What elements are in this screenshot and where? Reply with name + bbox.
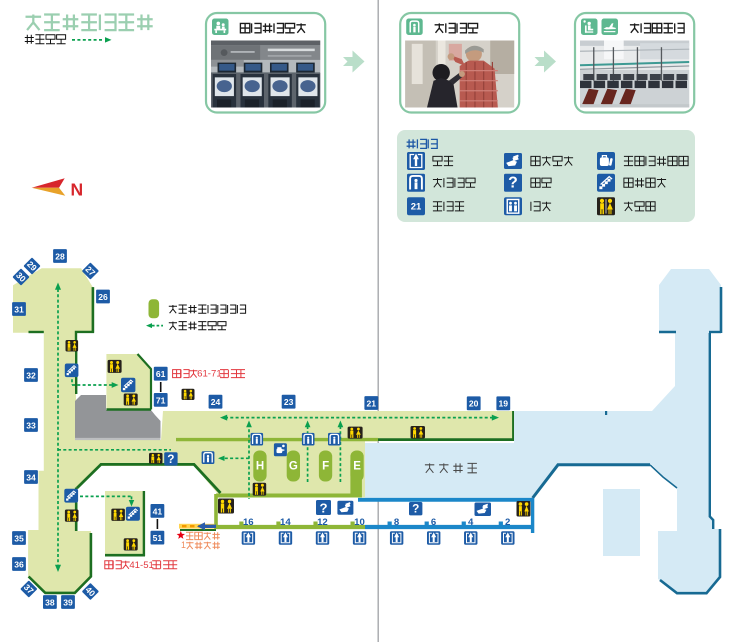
- svg-text:36: 36: [14, 559, 24, 569]
- svg-text:39: 39: [63, 597, 73, 607]
- svg-text:4: 4: [468, 517, 474, 528]
- svg-text:51: 51: [153, 533, 163, 543]
- svg-text:32: 32: [26, 370, 36, 380]
- svg-text:?: ?: [319, 501, 327, 516]
- svg-text:28: 28: [55, 251, 65, 261]
- svg-text:21: 21: [411, 201, 422, 212]
- svg-text:N: N: [71, 180, 84, 200]
- svg-text:?: ?: [508, 175, 518, 192]
- svg-text:10: 10: [354, 517, 365, 528]
- svg-text:23: 23: [284, 397, 294, 407]
- svg-text:20: 20: [469, 399, 479, 409]
- svg-text:8: 8: [394, 517, 400, 528]
- svg-text:12: 12: [317, 517, 328, 528]
- svg-text:71: 71: [156, 395, 166, 405]
- svg-text:35: 35: [14, 533, 24, 543]
- svg-text:E: E: [353, 461, 361, 473]
- svg-text:21: 21: [367, 398, 377, 408]
- svg-text:6: 6: [431, 517, 436, 528]
- svg-text:33: 33: [26, 420, 36, 430]
- svg-text:19: 19: [499, 399, 509, 409]
- svg-text:14: 14: [280, 517, 291, 528]
- svg-text:2: 2: [505, 517, 510, 528]
- svg-text:16: 16: [243, 517, 254, 528]
- svg-text:24: 24: [211, 397, 221, 407]
- svg-text:38: 38: [45, 597, 55, 607]
- svg-text:34: 34: [26, 472, 36, 482]
- svg-text:H: H: [256, 461, 264, 473]
- svg-text:41: 41: [153, 506, 163, 516]
- svg-text:26: 26: [98, 292, 108, 302]
- svg-text:G: G: [289, 461, 298, 473]
- svg-text:F: F: [322, 461, 329, 473]
- svg-text:41-51: 41-51: [129, 560, 154, 571]
- svg-text:1: 1: [181, 540, 186, 550]
- svg-text:?: ?: [412, 503, 419, 516]
- svg-text:61: 61: [156, 369, 166, 379]
- svg-text:31: 31: [14, 304, 24, 314]
- svg-text:?: ?: [167, 453, 174, 466]
- svg-text:61-71: 61-71: [197, 369, 222, 380]
